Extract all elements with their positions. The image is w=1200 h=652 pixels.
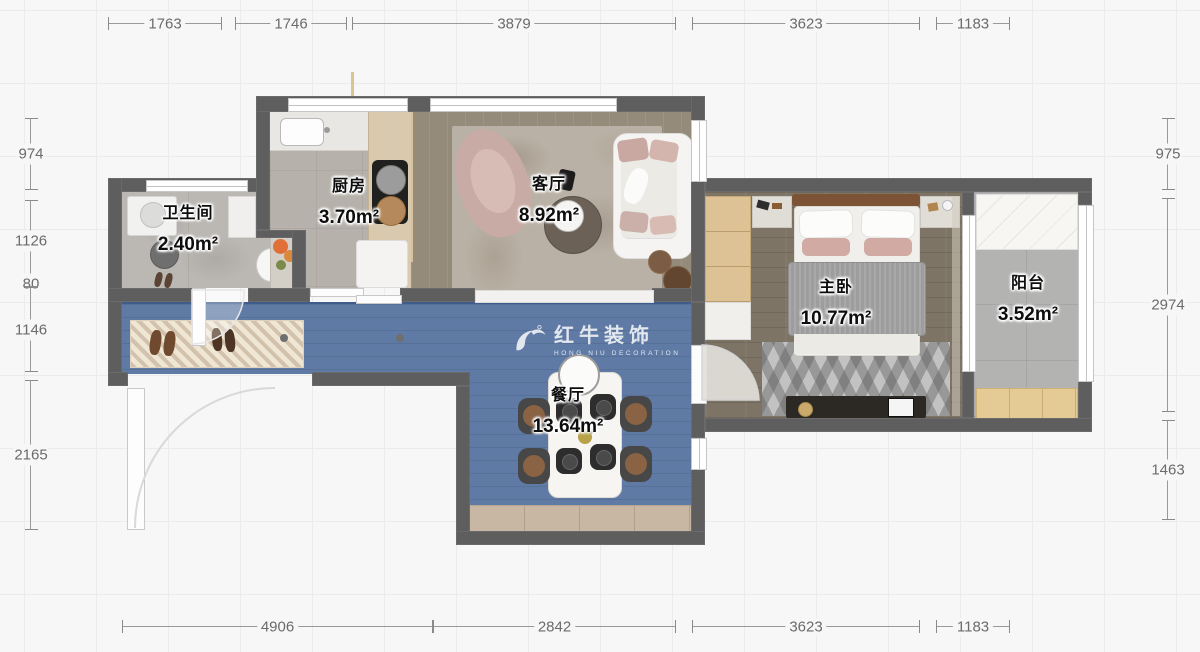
bed-headboard bbox=[792, 194, 920, 206]
dim-value: 1746 bbox=[270, 16, 311, 33]
kitchen-area: 3.70m² bbox=[319, 208, 379, 227]
dim-value: 1146 bbox=[14, 319, 48, 340]
dim-value: 974 bbox=[17, 144, 44, 165]
living-name: 客厅 bbox=[519, 177, 579, 193]
sofa-pillow bbox=[649, 215, 677, 236]
dining-chair bbox=[620, 446, 652, 482]
balcony-name: 阳台 bbox=[998, 276, 1058, 292]
living-area: 8.92m² bbox=[519, 206, 579, 225]
hallway-top-wall-b bbox=[248, 288, 310, 302]
sofa-pillow bbox=[619, 211, 649, 234]
nightstand-deco bbox=[927, 202, 938, 212]
room-label-living: 客厅 8.92m² bbox=[519, 177, 579, 225]
room-label-bedroom: 主卧 10.77m² bbox=[801, 280, 872, 328]
console-plate bbox=[798, 402, 813, 417]
hallway-bottom-wall-left bbox=[108, 372, 128, 386]
dim-value: 3879 bbox=[493, 16, 534, 33]
dining-sideboard bbox=[470, 505, 691, 532]
bedroom-door-leaf bbox=[691, 345, 707, 404]
balcony-divider-bottom bbox=[962, 370, 974, 418]
kitchen-plant-green bbox=[276, 260, 286, 270]
dim-value: 4906 bbox=[257, 619, 298, 636]
kitchen-name: 厨房 bbox=[319, 179, 379, 195]
dining-chair bbox=[518, 448, 550, 484]
bed-pillow-white bbox=[799, 209, 854, 239]
balcony-divider-top bbox=[962, 192, 974, 215]
floor-dot bbox=[280, 334, 288, 342]
cooking-pot-wood bbox=[376, 196, 406, 226]
bathroom-name: 卫生间 bbox=[158, 206, 218, 222]
balcony-divider-window bbox=[962, 215, 976, 372]
curtain bbox=[952, 196, 960, 416]
tv-screen bbox=[888, 398, 914, 417]
right-outer-wall-top bbox=[1078, 192, 1092, 205]
dim-left-4: 1146 bbox=[30, 287, 31, 372]
dining-east-window bbox=[691, 438, 707, 470]
dim-value: 2974 bbox=[1150, 295, 1185, 316]
entry-door-leaf bbox=[127, 388, 145, 530]
dim-left-5: 2165 bbox=[30, 380, 31, 530]
dim-left-2: 1126 bbox=[30, 200, 31, 281]
living-room-window bbox=[430, 98, 617, 112]
bedroom-bottom-wall bbox=[705, 418, 1092, 432]
living-dining-threshold bbox=[475, 290, 654, 303]
room-label-kitchen: 厨房 3.70m² bbox=[319, 179, 379, 227]
dim-top-4: 3623 bbox=[692, 23, 920, 24]
balcony-outer-window bbox=[1078, 205, 1094, 382]
balcony-cabinet-bottom bbox=[976, 388, 1078, 420]
dim-bottom-4: 1183 bbox=[936, 626, 1010, 627]
bed-pillow-pink bbox=[864, 238, 912, 256]
floorplan-canvas: 卫生间 2.40m² 厨房 3.70m² 客厅 8.92m² 餐厅 13.64m… bbox=[0, 0, 1200, 652]
place-setting bbox=[556, 448, 582, 474]
wardrobe bbox=[705, 196, 751, 304]
nightstand-deco bbox=[772, 203, 782, 209]
room-label-balcony: 阳台 3.52m² bbox=[998, 276, 1058, 324]
watermark-subtitle: HONG NIU DECORATION bbox=[554, 350, 681, 357]
dim-value: 2165 bbox=[13, 445, 48, 466]
dim-right-2: 2974 bbox=[1167, 198, 1168, 412]
kitchen-island-cabinet bbox=[356, 240, 408, 288]
dining-chair bbox=[620, 396, 652, 432]
dim-value: 80 bbox=[22, 274, 41, 295]
watermark: 红牛装饰 HONG NIU DECORATION bbox=[514, 324, 681, 357]
kitchen-faucet bbox=[324, 127, 330, 133]
place-setting bbox=[590, 444, 616, 470]
floor-dot bbox=[396, 334, 404, 342]
balcony-area: 3.52m² bbox=[998, 305, 1058, 324]
bull-logo-icon bbox=[514, 324, 548, 356]
bed-pillow-pink bbox=[802, 238, 850, 256]
dining-name: 餐厅 bbox=[533, 388, 604, 404]
room-label-bathroom: 卫生间 2.40m² bbox=[158, 206, 218, 254]
bathroom-window bbox=[146, 180, 248, 192]
nook-right-wall bbox=[292, 230, 306, 288]
hallway-bottom-wall-right bbox=[312, 372, 470, 386]
dim-top-3: 3879 bbox=[352, 23, 676, 24]
dim-value: 1763 bbox=[144, 16, 185, 33]
sofa-pillow bbox=[617, 137, 650, 163]
hallway-top-wall-a bbox=[108, 288, 192, 302]
left-outer-wall bbox=[108, 178, 122, 386]
watermark-brand: 红牛装饰 bbox=[554, 324, 681, 348]
dining-east-wall-mid bbox=[691, 402, 705, 438]
dim-value: 2842 bbox=[534, 619, 575, 636]
dim-value: 1126 bbox=[14, 230, 48, 251]
dim-value: 975 bbox=[1154, 144, 1181, 165]
dim-top-1: 1763 bbox=[108, 23, 222, 24]
dim-right-1: 975 bbox=[1167, 118, 1168, 190]
dim-top-2: 1746 bbox=[235, 23, 347, 24]
dim-value: 3623 bbox=[785, 16, 826, 33]
dim-bottom-3: 3623 bbox=[692, 626, 920, 627]
entry-door-arc bbox=[135, 388, 275, 528]
nightstand-lamp bbox=[942, 200, 953, 211]
kitchen-slider-panel bbox=[356, 295, 402, 304]
dim-bottom-2: 2842 bbox=[433, 626, 676, 627]
bedroom-area: 10.77m² bbox=[801, 309, 872, 328]
bedroom-top-wall bbox=[705, 178, 1092, 192]
bathroom-area: 2.40m² bbox=[158, 235, 218, 254]
dining-east-wall-upper bbox=[691, 302, 705, 345]
kitchen-window bbox=[288, 98, 408, 112]
bed-pillow-white bbox=[861, 209, 916, 239]
dining-west-wall bbox=[456, 386, 470, 545]
wardrobe-white-section bbox=[705, 302, 751, 340]
dim-left-1: 974 bbox=[30, 118, 31, 190]
dim-value: 1463 bbox=[1150, 460, 1185, 481]
dining-area: 13.64m² bbox=[533, 417, 604, 436]
balcony-cabinet-top bbox=[976, 194, 1078, 250]
cooking-pot-gray bbox=[376, 165, 406, 195]
dining-bottom-wall bbox=[456, 531, 705, 545]
dim-top-5: 1183 bbox=[936, 23, 1010, 24]
bathroom-vanity bbox=[228, 196, 256, 238]
dim-value: 1183 bbox=[953, 16, 993, 33]
kitchen-sink bbox=[280, 118, 324, 146]
hallway-top-wall-c bbox=[400, 288, 475, 302]
living-east-window bbox=[691, 120, 707, 182]
bathroom-door-leaf bbox=[192, 288, 206, 346]
dim-bottom-1: 4906 bbox=[122, 626, 433, 627]
bedroom-name: 主卧 bbox=[801, 280, 872, 296]
dim-right-3: 1463 bbox=[1167, 420, 1168, 520]
dim-value: 3623 bbox=[785, 619, 826, 636]
room-label-dining: 餐厅 13.64m² bbox=[533, 388, 604, 436]
kitchen-left-wall bbox=[256, 96, 270, 230]
dim-value: 1183 bbox=[953, 619, 993, 636]
bed-foot-sheet bbox=[794, 334, 918, 354]
